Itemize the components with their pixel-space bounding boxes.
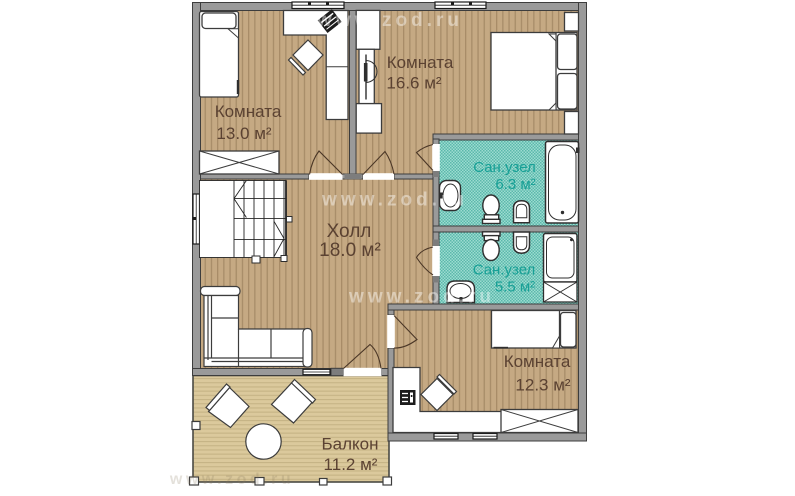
svg-text:Сан.узел: Сан.узел	[473, 159, 536, 176]
svg-text:11.2 м²: 11.2 м²	[324, 455, 378, 474]
svg-text:Комната: Комната	[215, 102, 282, 121]
svg-text:13.0 м²: 13.0 м²	[216, 124, 271, 143]
svg-text:Комната: Комната	[387, 53, 454, 72]
svg-text:www.zod.ru: www.zod.ru	[348, 287, 495, 308]
svg-text:www.zod.ru: www.zod.ru	[316, 10, 463, 31]
svg-text:www.zod.ru: www.zod.ru	[321, 190, 468, 211]
svg-text:12.3 м²: 12.3 м²	[515, 376, 570, 395]
svg-text:16.6 м²: 16.6 м²	[386, 74, 441, 93]
svg-text:Комната: Комната	[504, 352, 571, 371]
svg-text:6.3 м²: 6.3 м²	[495, 176, 535, 193]
svg-text:Балкон: Балкон	[321, 435, 378, 454]
svg-text:5.5 м²: 5.5 м²	[495, 279, 535, 296]
svg-text:Холл: Холл	[327, 221, 372, 242]
svg-text:Сан.узел: Сан.узел	[473, 262, 536, 279]
svg-text:www.zod.ru: www.zod.ru	[169, 471, 294, 488]
svg-text:18.0 м²: 18.0 м²	[319, 240, 381, 261]
